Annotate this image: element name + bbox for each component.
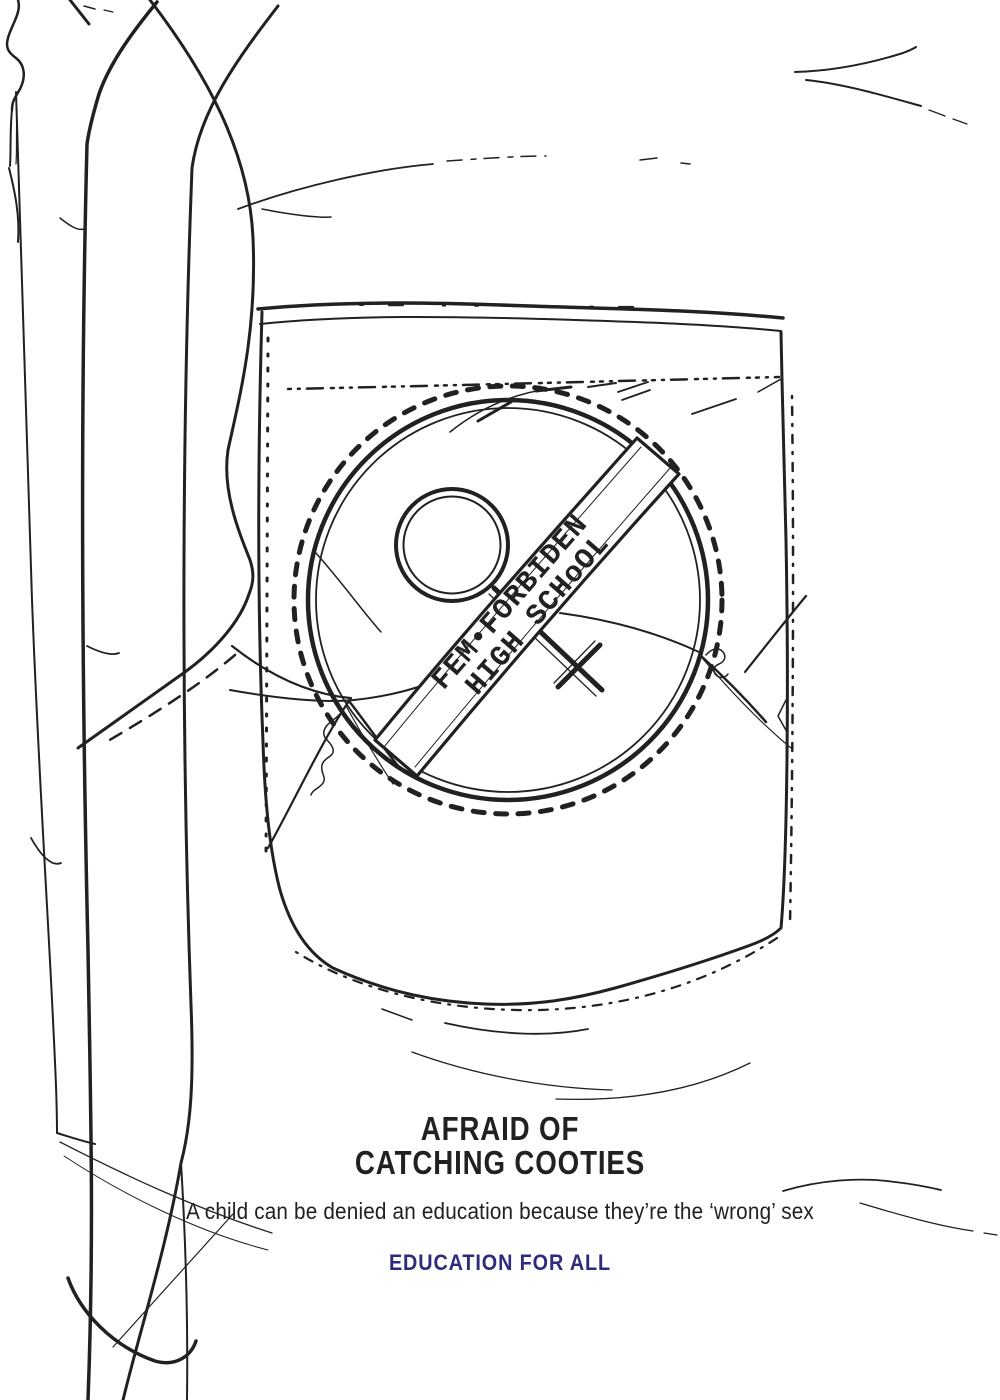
fabric-folds-top xyxy=(238,47,967,217)
headline-line1: AFRAID OF xyxy=(80,1112,920,1146)
pocket-left-stitch xyxy=(266,338,268,858)
banner-ribbon: FEM•FORBIDEN HIGH SCHoOL xyxy=(375,438,679,776)
headline-line2: CATCHING COOTIES xyxy=(80,1146,920,1180)
headline: AFRAID OF CATCHING COOTIES xyxy=(80,1112,920,1180)
pocket-right-stitch xyxy=(790,396,793,924)
pocket-sketch xyxy=(258,303,997,1235)
body-copy: A child can be denied an education becau… xyxy=(50,1198,950,1225)
loose-thread-left xyxy=(311,713,341,795)
pocket-bottom-stitch xyxy=(296,934,783,1010)
campaign-tagline: EDUCATION FOR ALL xyxy=(50,1250,950,1276)
poster-illustration: FEM•FORBIDEN HIGH SCHoOL xyxy=(0,0,1000,1400)
garment-sketch xyxy=(7,0,278,1400)
poster-page: { "colors": { "ink": "#232021", "accent"… xyxy=(0,0,1000,1400)
